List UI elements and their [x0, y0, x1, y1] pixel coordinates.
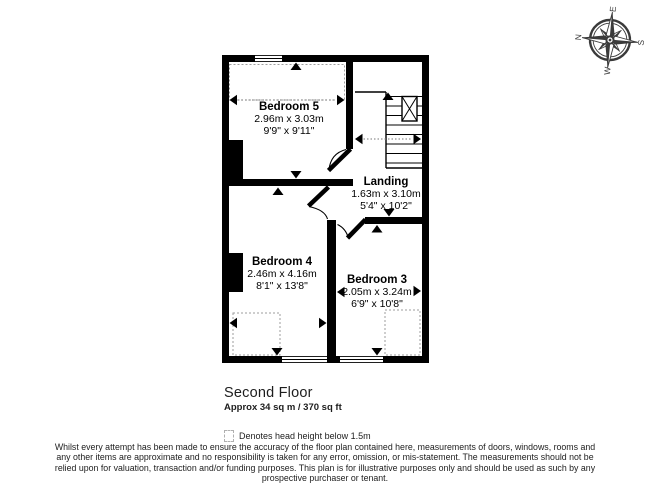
arrow-left-landing — [355, 134, 363, 145]
chimney-breast-bedroom5 — [229, 140, 243, 179]
room-size-imperial: 9'9" x 9'11" — [254, 125, 323, 137]
floor-plan-drawing — [0, 0, 650, 490]
door-leaf-bedroom4 — [309, 187, 329, 206]
arrow-down-bedroom4 — [272, 348, 283, 356]
room-size-metric: 2.96m x 3.03m — [254, 113, 323, 125]
arrow-up-bedroom3 — [372, 225, 383, 233]
room-label-landing: Landing 1.63m x 3.10m 5'4" x 10'2" — [351, 176, 420, 212]
window-bedroom4 — [282, 357, 330, 363]
wall-bedroom4-bedroom3 — [327, 220, 336, 363]
disclaimer-line: prospective purchaser or tenant. — [0, 473, 650, 483]
room-name: Bedroom 4 — [247, 256, 316, 268]
floor-area: Approx 34 sq m / 370 sq ft — [224, 402, 342, 413]
chimney-breast-bedroom4 — [229, 253, 243, 292]
door-leaf-bedroom3 — [348, 220, 366, 239]
legend: Denotes head height below 1.5m — [224, 427, 371, 439]
room-size-imperial: 6'9" x 10'8" — [342, 298, 411, 310]
room-label-bedroom4: Bedroom 4 2.46m x 4.16m 8'1" x 13'8" — [247, 256, 316, 292]
wall-bedroom3-top — [365, 217, 429, 224]
compass-east-label: E — [607, 6, 617, 13]
wall-right — [422, 55, 429, 363]
arrow-right-bedroom5 — [337, 95, 345, 106]
door-arc-bedroom4 — [309, 207, 328, 220]
head-height-bedroom3 — [385, 310, 420, 355]
arrow-down-bedroom5 — [291, 171, 302, 179]
disclaimer-line: relied upon for valuation, transaction a… — [0, 463, 650, 473]
wall-bedroom5-stairs — [346, 55, 353, 149]
legend-text: Denotes head height below 1.5m — [239, 431, 371, 441]
arrow-up-bedroom4 — [273, 188, 284, 196]
room-label-bedroom5: Bedroom 5 2.96m x 3.03m 9'9" x 9'11" — [254, 101, 323, 137]
compass-rose-icon: N E S W — [574, 4, 646, 76]
compass-north-label: N — [574, 34, 583, 41]
room-size-imperial: 8'1" x 13'8" — [247, 280, 316, 292]
arrow-right-bedroom4 — [319, 318, 327, 329]
window-bedroom3 — [340, 357, 383, 363]
room-name: Landing — [351, 176, 420, 188]
wall-left — [222, 55, 229, 363]
arrow-right-landing — [414, 134, 422, 145]
compass-south-label: S — [636, 39, 646, 46]
room-size-metric: 1.63m x 3.10m — [351, 188, 420, 200]
arrow-right-bedroom3 — [414, 286, 422, 297]
head-height-legend-icon — [224, 430, 234, 442]
staircase — [355, 92, 422, 168]
room-name: Bedroom 3 — [342, 274, 411, 286]
head-height-bedroom5 — [230, 65, 345, 101]
arrow-left-bedroom5 — [230, 95, 238, 106]
wall-top-right — [282, 55, 429, 62]
disclaimer-line: Whilst every attempt has been made to en… — [0, 442, 650, 452]
wall-bottom-right — [383, 356, 429, 363]
wall-bedroom5-bottom — [222, 179, 353, 186]
room-size-imperial: 5'4" x 10'2" — [351, 200, 420, 212]
window-bedroom5 — [255, 56, 282, 62]
disclaimer: Whilst every attempt has been made to en… — [0, 442, 650, 483]
wall-bottom-left — [222, 356, 282, 363]
arrow-up-bedroom5 — [291, 63, 302, 71]
room-label-bedroom3: Bedroom 3 2.05m x 3.24m 6'9" x 10'8" — [342, 274, 411, 310]
room-size-metric: 2.46m x 4.16m — [247, 268, 316, 280]
room-name: Bedroom 5 — [254, 101, 323, 113]
floor-title: Second Floor — [224, 385, 313, 401]
arrow-down-bedroom3 — [372, 348, 383, 356]
stair-crossed-box — [402, 97, 417, 122]
disclaimer-line: any other items are approximate and no r… — [0, 452, 650, 462]
floorplan-page: Bedroom 5 2.96m x 3.03m 9'9" x 9'11" Lan… — [0, 0, 650, 490]
compass-west-label: W — [602, 66, 613, 75]
room-size-metric: 2.05m x 3.24m — [342, 286, 411, 298]
